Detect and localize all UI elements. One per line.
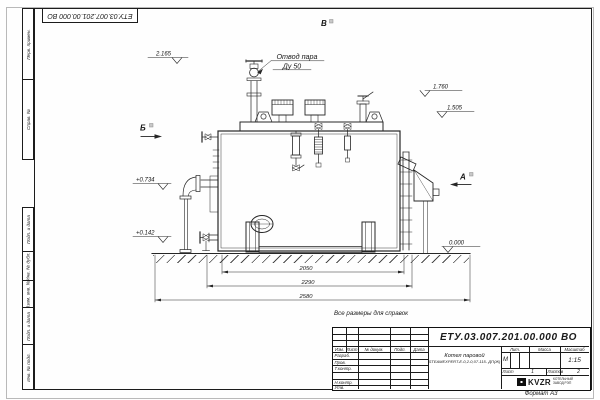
elevation-markers	[133, 58, 480, 253]
lit-value: М	[501, 352, 510, 368]
dimension-label-2290: 2290	[301, 280, 316, 286]
dimension-label-2050: 2050	[299, 266, 314, 272]
nozzle-fitting	[315, 124, 322, 130]
view-label-a: А	[459, 173, 466, 182]
nozzle-fitting	[344, 124, 351, 130]
view-ref-mark	[150, 124, 154, 128]
burner-bracket	[414, 170, 439, 253]
right-flange-column	[400, 152, 412, 250]
col-header-data: Дата	[410, 346, 428, 352]
role-razrab: Разраб.	[333, 352, 358, 359]
drawing-sheet: ЕТУ.03.007.201.00.000 ВО Перв. примен. С…	[0, 0, 600, 400]
title-block: Изм. Лист № докум. Подп. Дата Разраб. Пр…	[332, 327, 591, 391]
left-upper-valve	[202, 132, 218, 142]
company-tagline-line2: ЗАВОД РЭП	[553, 382, 573, 386]
lifting-lug-left	[255, 112, 272, 122]
lever-valve	[357, 92, 373, 122]
steam-outlet-valve	[246, 60, 262, 123]
product-name-cell: Котел паровой STEAMEXPERT-Е-0,2-0,07-115…	[428, 346, 501, 389]
water-level-gauge	[291, 131, 304, 171]
col-header-ndokum: № докум.	[358, 346, 390, 352]
probe-fitting	[345, 130, 351, 163]
callout-steam-outlet: Отвод пара	[276, 52, 317, 61]
elevation-label: 1.760	[433, 85, 449, 91]
top-platform	[240, 122, 383, 131]
role-tkontr: Т.контр.	[333, 365, 358, 372]
company-cell: KVZR КОТЕЛЬНЫЙ ЗАВОД РЭП	[501, 375, 589, 389]
lifting-lug-right	[366, 112, 383, 122]
scale-value: 1:15	[560, 352, 589, 368]
manhole	[251, 216, 273, 233]
view-label-v: В	[321, 19, 327, 28]
safety-valve-left	[272, 100, 293, 122]
role-utv: Утв.	[333, 385, 358, 389]
callout-dn50: Ду 50	[282, 64, 301, 71]
feedwater-elbow	[180, 176, 218, 253]
boiler-body	[218, 131, 400, 251]
safety-valve-right	[305, 100, 325, 122]
dimension-lines	[155, 271, 470, 302]
product-model: STEAMEXPERT-Е-0,2-0,07-115- ДП(Ж)	[429, 359, 501, 364]
dimension-label-2580: 2580	[299, 294, 314, 300]
view-label-b: Б	[140, 124, 146, 133]
elevation-label: 1.505	[447, 106, 463, 112]
sheet-label: Лист	[501, 368, 519, 375]
view-ref-mark	[330, 20, 334, 24]
format-note: Формат А3	[486, 391, 596, 397]
doc-number: ЕТУ.03.007.201.00.000 ВО	[428, 328, 589, 346]
callout-leader	[258, 61, 271, 72]
elevation-label: 0.000	[449, 241, 465, 247]
kvzr-logo-icon	[517, 378, 526, 386]
elevation-label: +0.142	[136, 231, 155, 237]
right-chute	[398, 157, 416, 171]
elevation-label: +0.734	[136, 178, 155, 184]
drain-valve	[200, 232, 218, 251]
wall-plate	[210, 176, 218, 212]
sheet-value: 1	[519, 368, 546, 375]
spring-gauge	[315, 130, 323, 168]
company-tagline: КОТЕЛЬНЫЙ ЗАВОД РЭП	[553, 378, 573, 386]
reference-note: Все размеры для справок	[334, 310, 408, 317]
mass-header: Масса	[529, 346, 560, 352]
sheets-value: 2	[568, 368, 589, 375]
view-ref-mark	[470, 173, 474, 177]
sheets-label: Листов	[546, 368, 568, 375]
col-header-podp: Подп.	[390, 346, 410, 352]
company-logo-text: KVZR	[528, 378, 551, 387]
elevation-label: 2.165	[155, 52, 172, 58]
